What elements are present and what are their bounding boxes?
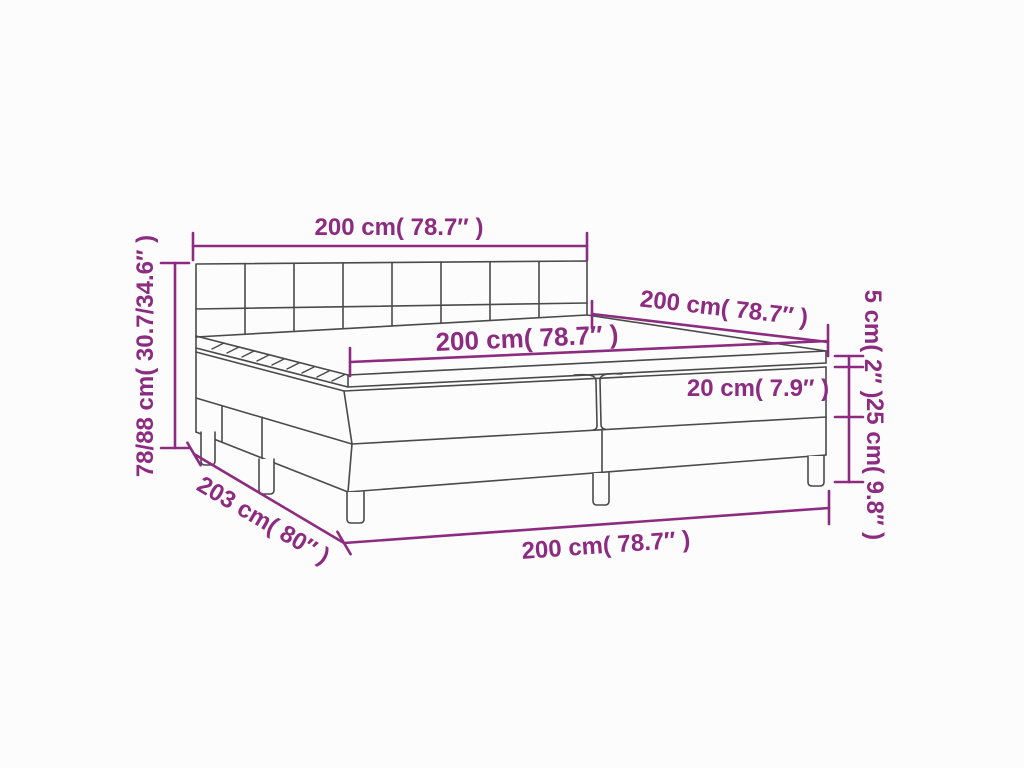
bed-leg: [808, 456, 824, 486]
dimension-label-mattress-height: 20 cm( 7.9″ ): [687, 377, 829, 401]
bed-leg: [259, 459, 274, 494]
dimension-label-total-height: 78/88 cm( 30.7/34.6″ ): [134, 235, 158, 477]
box-spring-base: [196, 336, 826, 492]
dimension-label-base-height: 25 cm( 9.8″ ): [862, 398, 886, 540]
dimension-label-topper-height: 5 cm( 2″ ): [860, 290, 884, 399]
bed-legs: [201, 432, 824, 523]
dimension-label-mattress-width: 200 cm( 78.7″ ): [435, 321, 619, 355]
dimension-diagram: 200 cm( 78.7″ ) 200 cm( 78.7″ ) 200 cm( …: [0, 0, 1024, 768]
dimension-line-total-height: [161, 263, 189, 448]
bed-leg: [593, 473, 609, 505]
bed-leg: [347, 492, 364, 523]
dimension-label-headboard-width: 200 cm( 78.7″ ): [315, 216, 484, 240]
